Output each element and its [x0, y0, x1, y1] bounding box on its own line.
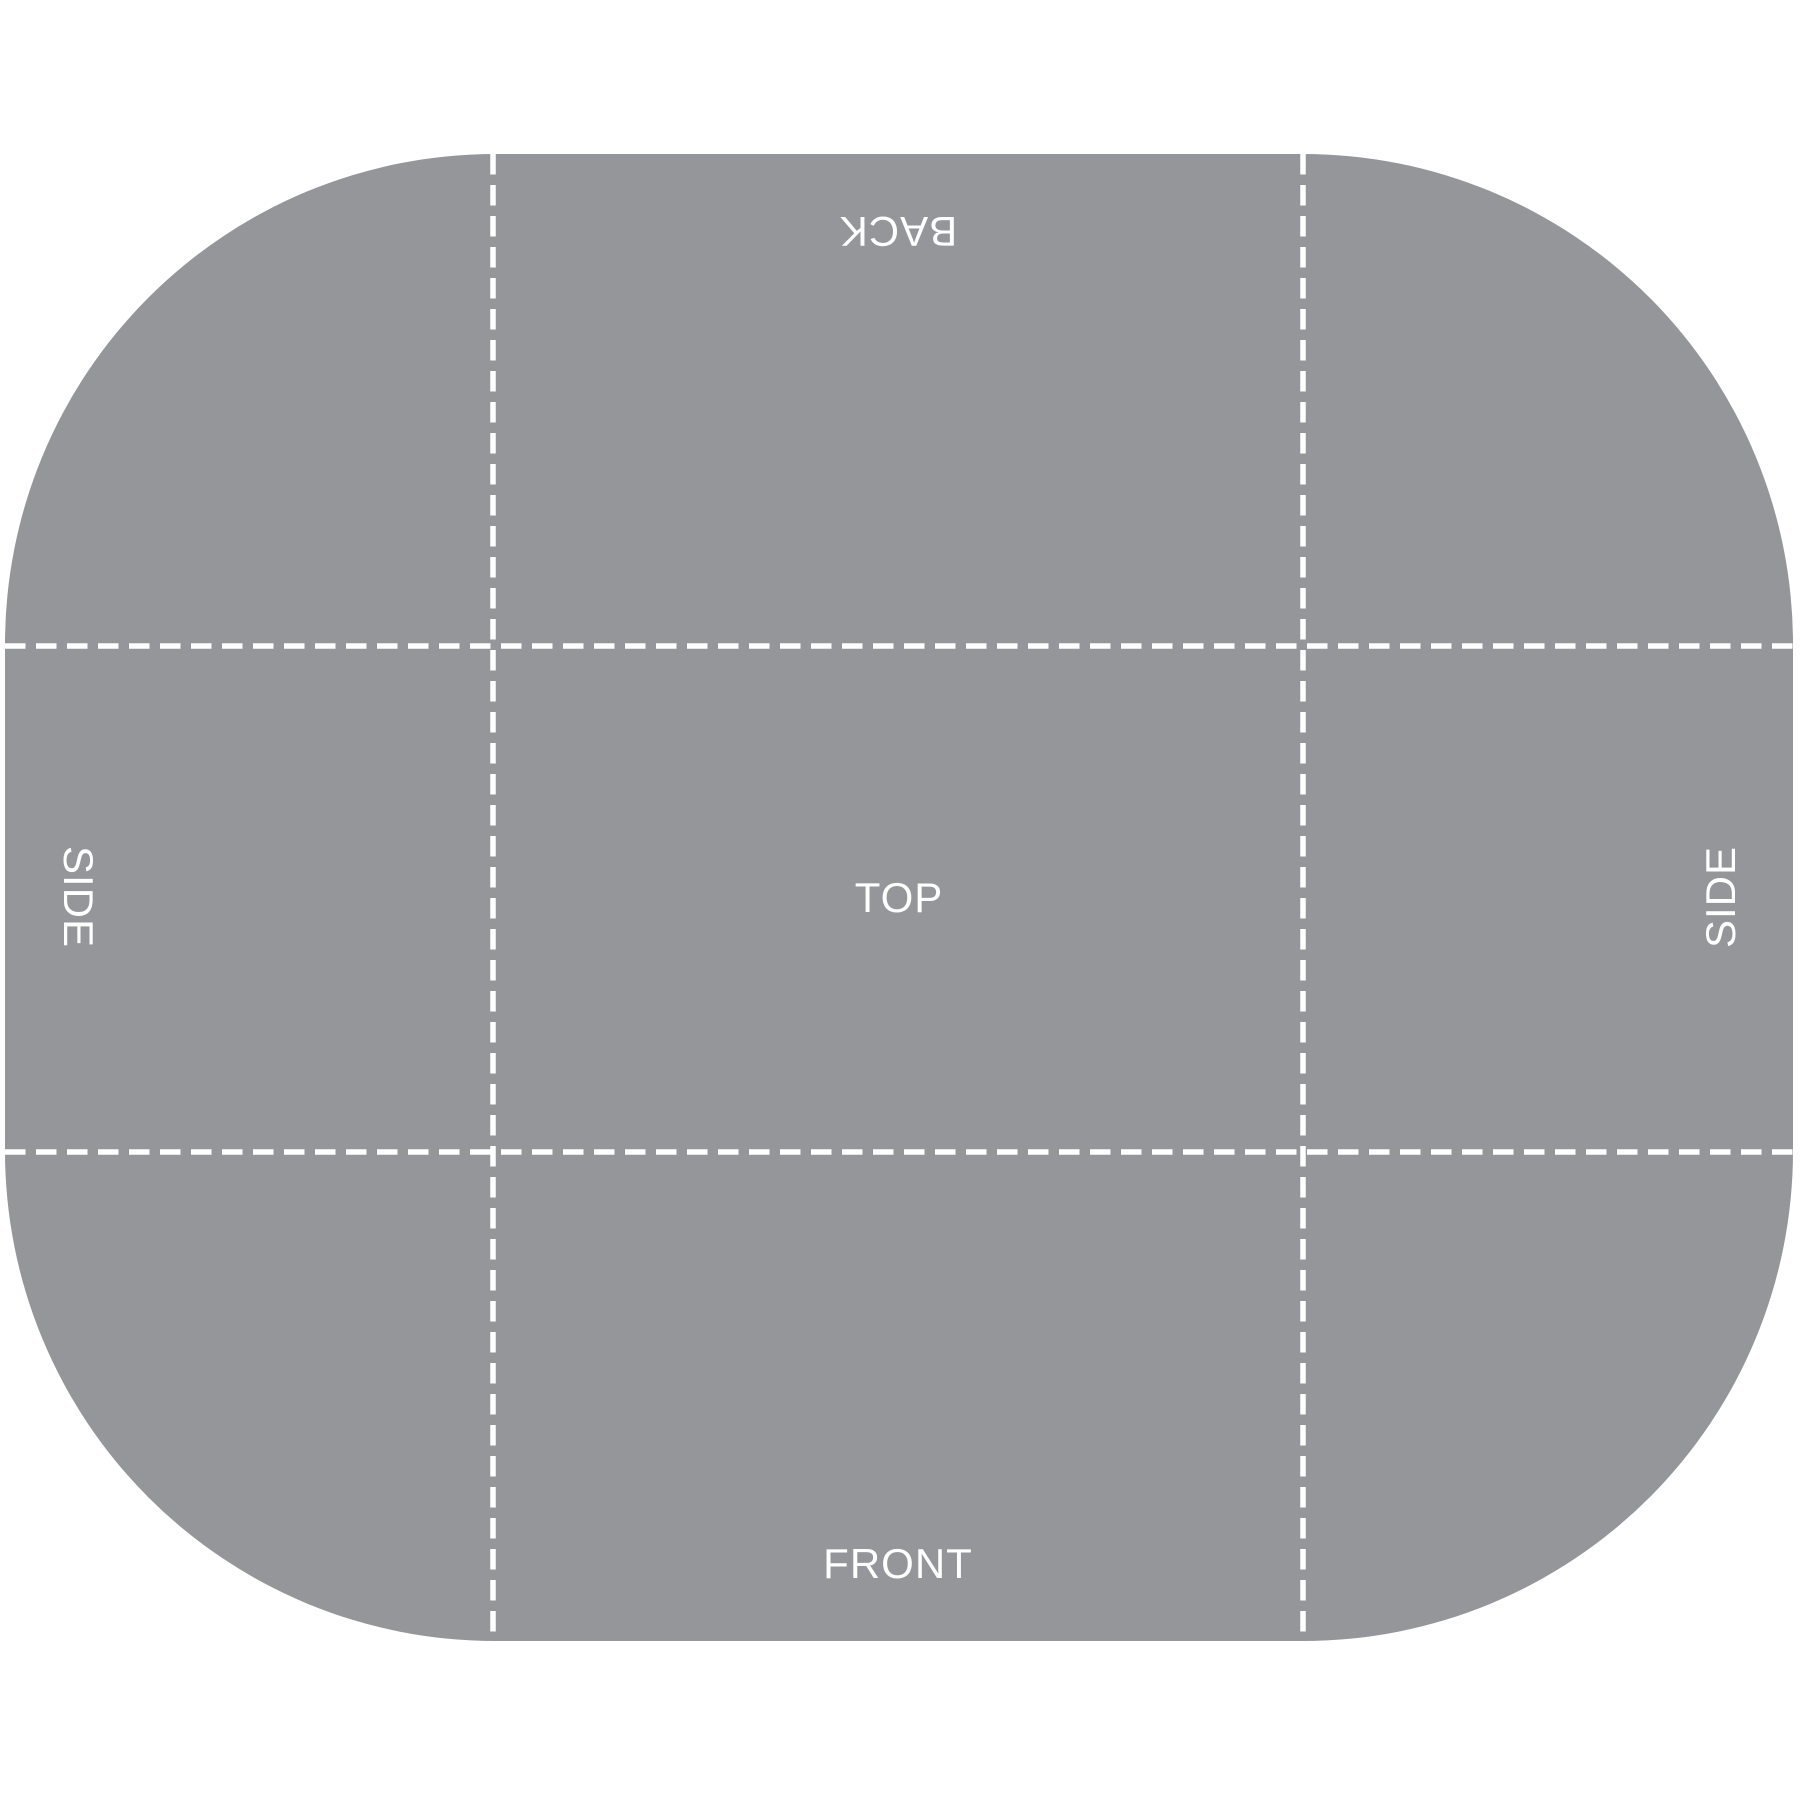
side-left-panel-label: SIDE	[57, 846, 99, 948]
top-panel-label: TOP	[855, 877, 944, 919]
front-panel-label: FRONT	[823, 1543, 973, 1585]
side-right-panel-label: SIDE	[1700, 846, 1742, 948]
dieline-canvas: BACK TOP FRONT SIDE SIDE	[0, 0, 1800, 1800]
back-panel-label: BACK	[839, 210, 957, 252]
